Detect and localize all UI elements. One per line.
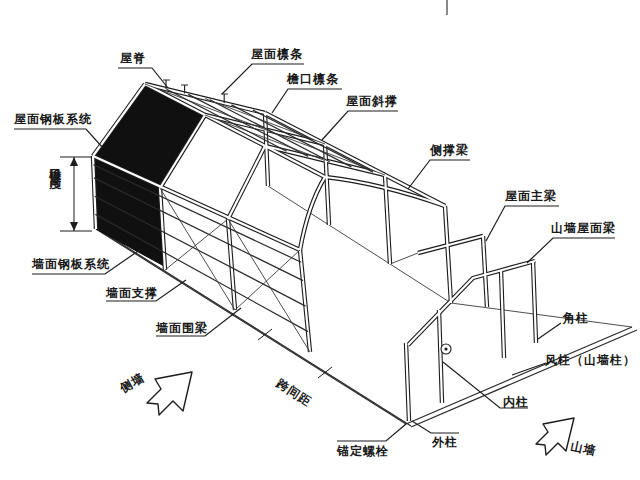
detail-circle-marker [441,344,451,354]
label-wall-panel-system: 墙面钢板系统 [32,258,110,271]
leader-lines [14,64,615,441]
label-outer-column: 外柱 [432,436,458,449]
label-wall-girt: 墙面围梁 [156,322,208,335]
label-roof-panel-system: 屋面钢板系统 [14,113,92,126]
gable-wall-arrow [536,418,574,455]
eave-height-dimension [60,157,92,231]
label-wall-brace: 墙面支撑 [106,287,158,300]
label-wind-column: 风柱（山墙柱） [545,354,636,367]
label-ridge: 屋脊 [120,52,146,65]
label-roof-purlin: 屋面檩条 [251,48,303,61]
label-gable-roof-beam: 山墙屋面梁 [551,222,616,235]
label-anchor-bolt: 锚定螺栓 [337,445,389,458]
side-wall-arrow [147,372,192,415]
label-eave-height: 檐口高度 [48,158,61,170]
label-eave-strut: 侧撑梁 [430,144,469,157]
label-inner-column: 内柱 [503,396,529,409]
label-eave-purlin: 檐口檩条 [287,73,339,86]
label-roof-main-beam: 屋面主梁 [505,190,557,203]
label-corner-column: 角柱 [563,312,589,325]
label-roof-brace: 屋面斜撑 [346,95,398,108]
diagram-stage: 屋脊 屋面檩条 檐口檩条 屋面斜撑 侧撑梁 屋面主梁 山墙屋面梁 角柱 风柱（山… [0,0,640,480]
